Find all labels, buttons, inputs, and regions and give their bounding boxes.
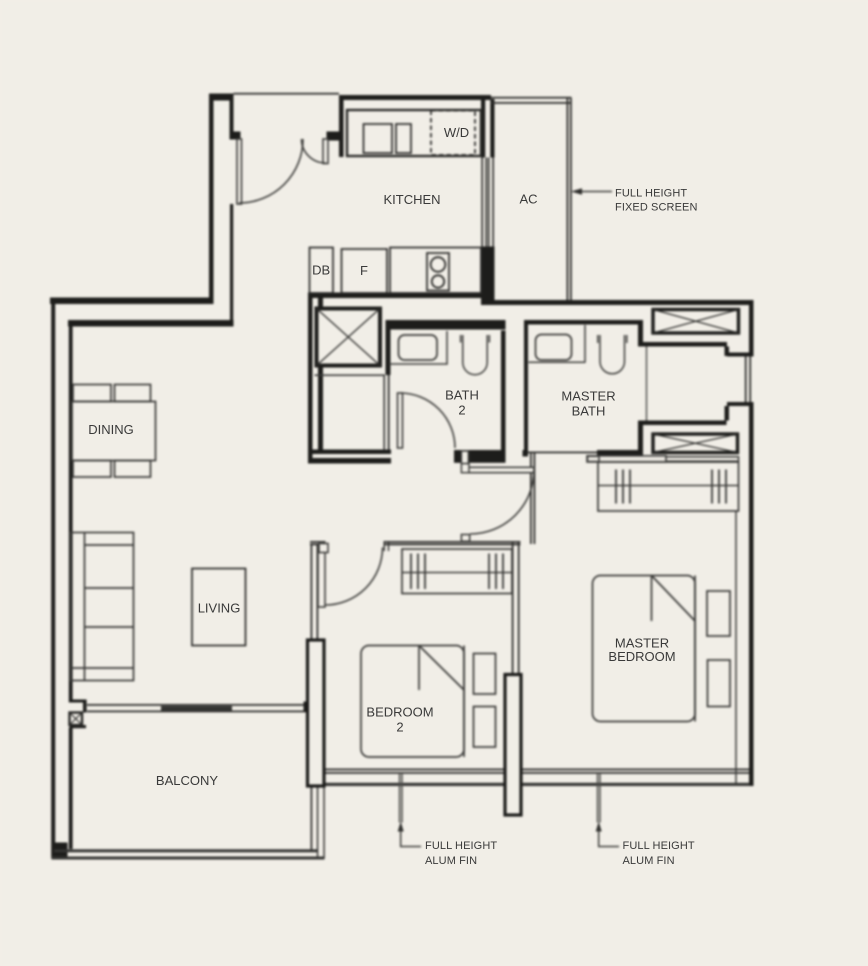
svg-text:AC: AC <box>519 192 537 207</box>
svg-text:ALUM FIN: ALUM FIN <box>425 855 477 867</box>
svg-text:BEDROOM: BEDROOM <box>608 649 675 664</box>
svg-text:DB: DB <box>312 263 330 278</box>
svg-text:DINING: DINING <box>88 422 134 437</box>
svg-text:2: 2 <box>458 403 465 418</box>
svg-text:ALUM FIN: ALUM FIN <box>623 855 675 867</box>
svg-text:FIXED SCREEN: FIXED SCREEN <box>615 202 698 214</box>
svg-text:FULL HEIGHT: FULL HEIGHT <box>615 188 687 200</box>
svg-text:2: 2 <box>396 720 403 735</box>
svg-text:F: F <box>360 263 368 278</box>
svg-text:BATH: BATH <box>445 388 479 403</box>
svg-text:FULL HEIGHT: FULL HEIGHT <box>623 840 695 852</box>
svg-text:MASTER: MASTER <box>561 389 615 404</box>
svg-text:FULL HEIGHT: FULL HEIGHT <box>425 840 497 852</box>
svg-text:KITCHEN: KITCHEN <box>383 192 440 207</box>
svg-text:BEDROOM: BEDROOM <box>366 705 433 720</box>
svg-text:BALCONY: BALCONY <box>156 773 218 788</box>
svg-text:W/D: W/D <box>444 125 469 140</box>
svg-text:BATH: BATH <box>572 404 606 419</box>
svg-text:LIVING: LIVING <box>198 601 241 616</box>
